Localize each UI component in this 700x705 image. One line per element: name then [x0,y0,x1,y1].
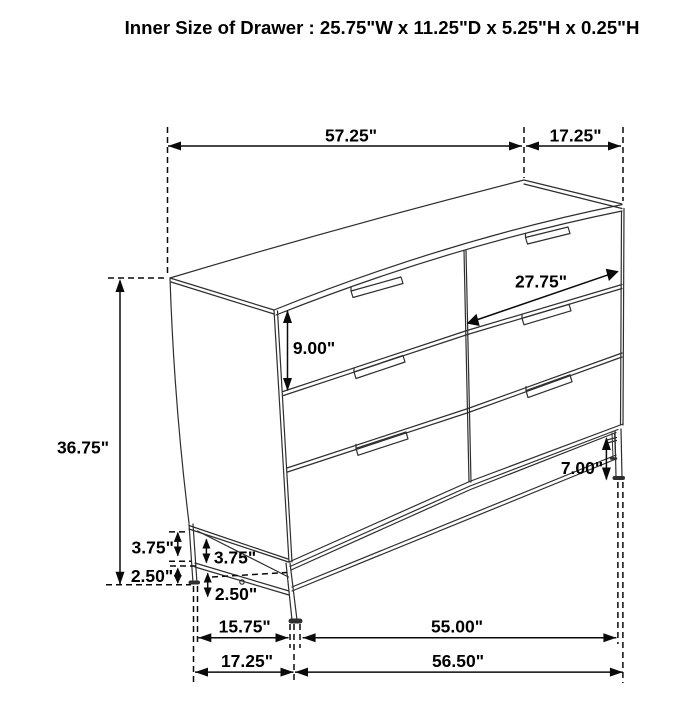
svg-text:9.00": 9.00" [293,338,335,358]
svg-text:27.75": 27.75" [515,272,567,292]
svg-text:2.50": 2.50" [131,566,173,586]
svg-text:17.25": 17.25" [549,126,601,146]
svg-text:7.00": 7.00" [561,458,603,478]
svg-text:17.25": 17.25" [221,651,273,671]
svg-text:55.00": 55.00" [431,617,483,637]
svg-text:Inner Size of Drawer : 25.75"W: Inner Size of Drawer : 25.75"W x 11.25"D… [125,17,640,38]
svg-text:3.75": 3.75" [214,548,256,568]
svg-text:2.50": 2.50" [215,584,257,604]
svg-text:56.50": 56.50" [432,651,484,671]
svg-text:57.25": 57.25" [325,126,377,146]
svg-text:36.75": 36.75" [57,438,109,458]
svg-text:3.75": 3.75" [132,538,174,558]
svg-text:15.75": 15.75" [219,617,271,637]
